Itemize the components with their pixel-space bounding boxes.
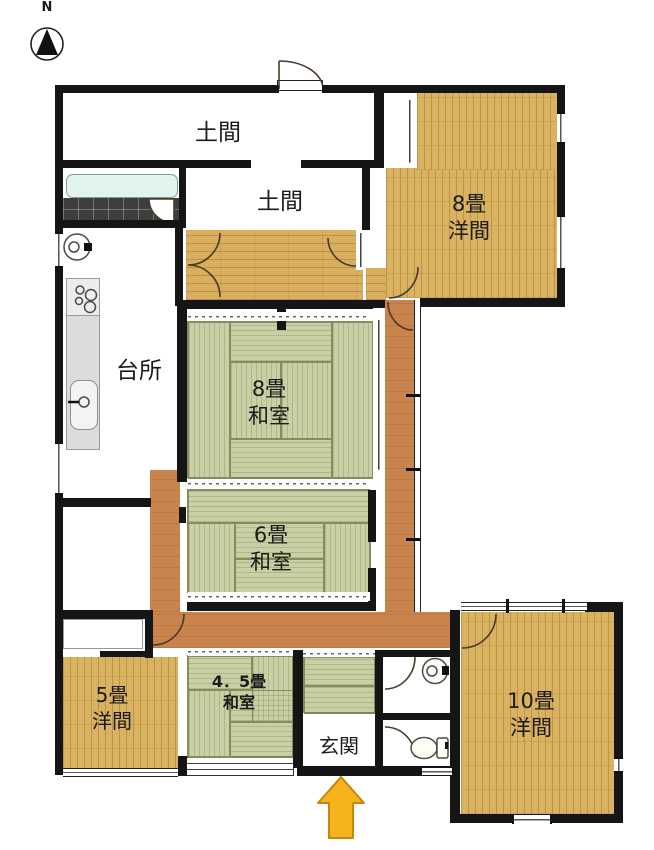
corridor-floor bbox=[150, 470, 180, 612]
wall-segment bbox=[175, 226, 183, 306]
veranda-window bbox=[186, 757, 294, 776]
wall-segment bbox=[450, 610, 460, 823]
wall-segment bbox=[368, 568, 376, 611]
tatami-mat bbox=[230, 439, 332, 479]
sliding-door-track bbox=[303, 650, 375, 657]
wall-segment bbox=[322, 85, 565, 93]
wall-segment bbox=[55, 160, 251, 168]
window bbox=[557, 112, 565, 144]
sliding-door-track bbox=[188, 312, 370, 321]
wall-segment bbox=[100, 651, 146, 657]
room-label-japanese45: 4．5畳和室 bbox=[180, 672, 298, 714]
room-label-doma-lower: 土間 bbox=[220, 188, 340, 218]
wall-segment bbox=[187, 602, 371, 611]
toilet-handle-icon bbox=[445, 742, 449, 749]
bathtub bbox=[66, 174, 178, 198]
corridor-floor bbox=[150, 612, 452, 648]
wall-segment bbox=[293, 650, 303, 768]
entrance-door-sill bbox=[277, 80, 323, 91]
wall-segment bbox=[55, 85, 279, 93]
tatami-mat bbox=[332, 322, 374, 479]
glass-wall bbox=[414, 300, 421, 612]
wall-segment bbox=[55, 93, 63, 775]
window bbox=[614, 757, 623, 773]
compass-icon bbox=[31, 28, 63, 60]
tatami-mat bbox=[304, 657, 376, 686]
closet bbox=[63, 619, 143, 649]
genkan-hall-tatami bbox=[303, 656, 375, 713]
window-tick bbox=[406, 468, 421, 471]
entrance-arrow-icon bbox=[318, 777, 364, 838]
compass-north-label: N bbox=[37, 0, 57, 17]
washbasin-icon bbox=[427, 666, 437, 676]
window bbox=[557, 215, 565, 270]
wall-segment bbox=[177, 308, 187, 482]
sliding-door-track bbox=[188, 479, 370, 489]
window bbox=[420, 768, 454, 775]
room-label-doma-upper: 土間 bbox=[158, 119, 278, 149]
wall-segment bbox=[614, 608, 623, 823]
toilet-icon bbox=[411, 738, 437, 759]
wall-segment bbox=[178, 756, 187, 776]
room-label-western8: 8畳洋間 bbox=[409, 191, 529, 246]
floor-plan: N 土間 土間 台所 8畳洋間 8畳和室 6畳和室 5畳洋間 4．5畳和室 玄関… bbox=[0, 0, 654, 850]
wall-segment bbox=[179, 507, 186, 523]
wall-segment bbox=[368, 490, 376, 542]
wall-segment bbox=[145, 612, 153, 658]
washbasin-tap-icon bbox=[84, 243, 92, 251]
washbasin-icon bbox=[69, 242, 79, 252]
washbasin-icon bbox=[64, 234, 90, 260]
hallway-floor bbox=[186, 230, 363, 300]
kitchen-sink bbox=[70, 380, 98, 430]
corridor-floor bbox=[385, 300, 414, 612]
room-label-western10: 10畳洋間 bbox=[471, 688, 591, 743]
hallway-floor bbox=[366, 268, 386, 300]
wall-segment bbox=[55, 220, 186, 228]
window-tick bbox=[506, 599, 509, 613]
wall-segment bbox=[285, 300, 385, 309]
window-tick bbox=[406, 538, 421, 541]
window-strip bbox=[461, 602, 587, 611]
toilet-tank-icon bbox=[437, 738, 448, 758]
washbasin-tap-icon bbox=[442, 666, 449, 675]
wall-segment bbox=[55, 610, 153, 619]
room-label-japanese8: 8畳和室 bbox=[209, 376, 329, 431]
tatami-mat bbox=[304, 686, 376, 714]
tatami-mat bbox=[188, 490, 371, 523]
window bbox=[512, 815, 552, 824]
window bbox=[55, 442, 63, 495]
sliding-door-track bbox=[188, 592, 370, 601]
wall-segment bbox=[177, 300, 279, 309]
sliding-door-track bbox=[356, 230, 366, 270]
wall-segment bbox=[179, 166, 186, 224]
wall-segment bbox=[297, 766, 381, 776]
tatami-mat bbox=[324, 523, 371, 594]
wall-segment bbox=[362, 166, 370, 230]
washroom-door-swing bbox=[385, 657, 415, 689]
sliding-door-track bbox=[188, 648, 293, 656]
stove bbox=[66, 278, 100, 316]
wall-segment bbox=[381, 713, 458, 720]
wood-floor bbox=[417, 93, 557, 170]
window-tick bbox=[406, 394, 421, 397]
room-label-japanese6: 6畳和室 bbox=[211, 522, 331, 577]
window-strip bbox=[63, 768, 178, 777]
wall-segment bbox=[420, 298, 565, 307]
sliding-door-track bbox=[373, 308, 385, 482]
window bbox=[55, 232, 63, 268]
window-tick bbox=[562, 599, 565, 613]
sliding-door-track bbox=[405, 95, 414, 168]
room-label-western5: 5畳洋間 bbox=[52, 682, 172, 734]
wall-segment bbox=[55, 498, 151, 507]
washbasin-icon bbox=[423, 659, 448, 684]
wall-segment bbox=[374, 93, 384, 168]
wall-segment bbox=[375, 650, 458, 657]
